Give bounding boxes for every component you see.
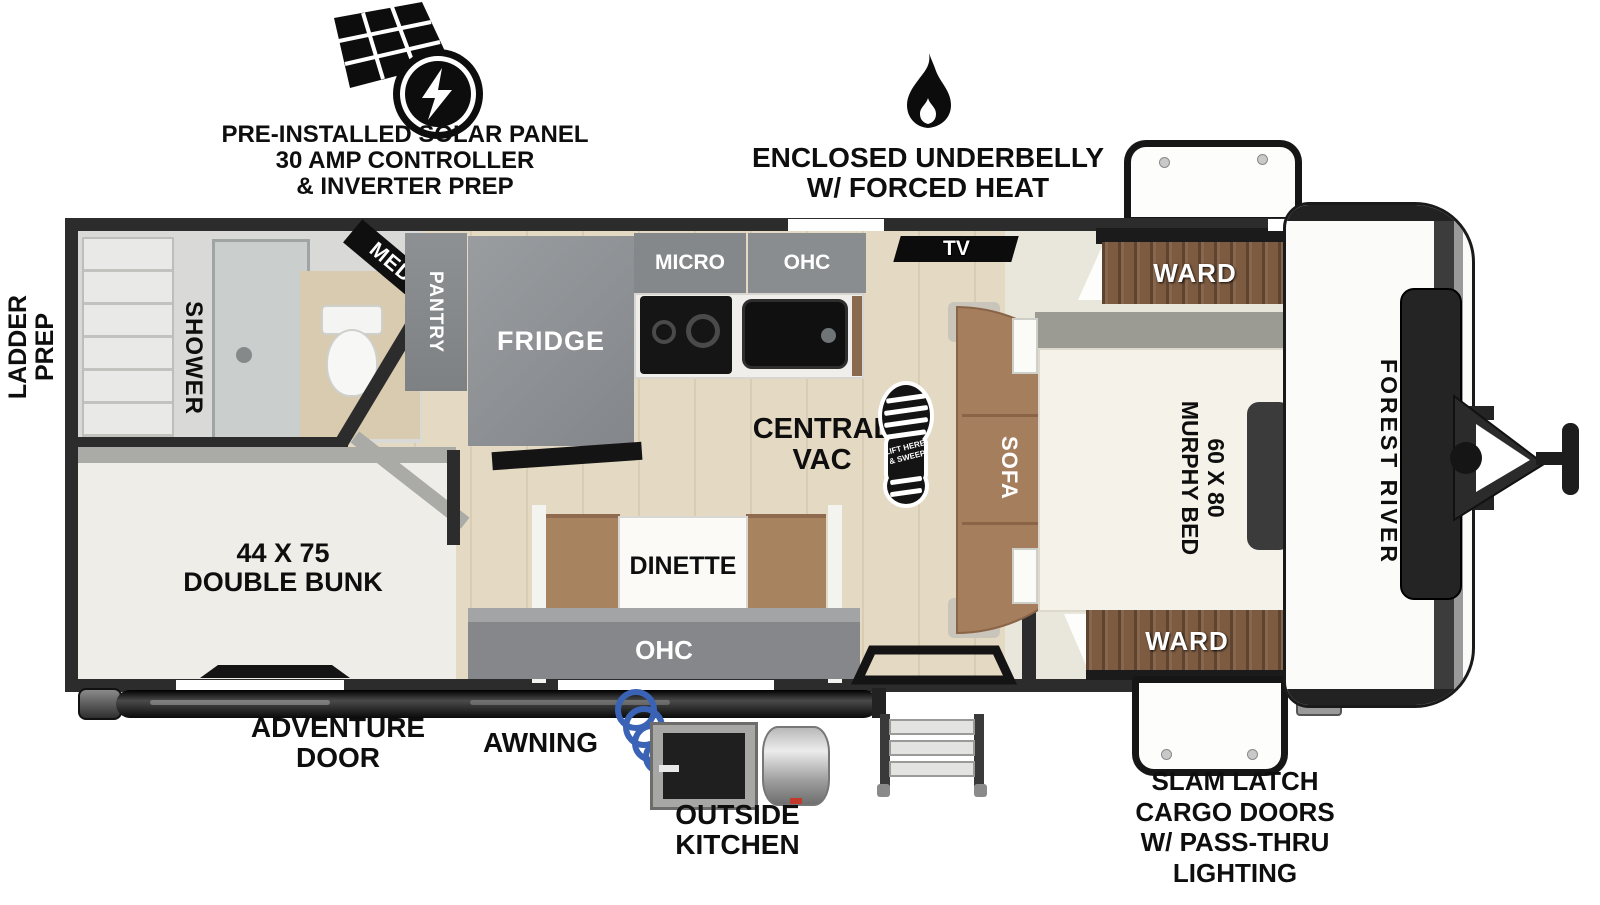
ward-bottom-label: WARD (1145, 626, 1228, 657)
boot-print-icon: LIFT HERE & SWEEP (876, 380, 936, 512)
awning-glint (150, 700, 330, 705)
cap-top-trim (1286, 205, 1472, 221)
cargo-doors-line: SLAM LATCH (1120, 766, 1350, 797)
faucet-icon (821, 328, 836, 343)
burner-icon (686, 314, 720, 348)
underbelly-line: ENCLOSED UNDERBELLY (738, 143, 1118, 173)
ward-top-label: WARD (1153, 258, 1236, 289)
entry-door-mat (850, 644, 1020, 688)
ladder-prep-line: PREP (32, 262, 59, 432)
solar-line: & INVERTER PREP (215, 174, 595, 200)
dinette-ohc: OHC (468, 608, 860, 679)
entry-steps (874, 714, 990, 798)
dinette-bench (546, 514, 620, 616)
hitch-icon (1448, 378, 1583, 538)
bunk-step-mat (200, 665, 350, 678)
linen-closet (82, 237, 174, 439)
dinette-label: DINETTE (630, 553, 737, 580)
bunk-room: 44 X 75 DOUBLE BUNK (78, 447, 456, 679)
adventure-door-line: DOOR (218, 743, 458, 773)
forced-heat-flame-icon (896, 52, 960, 138)
outside-griddle (762, 726, 830, 806)
screw-icon (1161, 749, 1172, 760)
pantry-label: PANTRY (426, 237, 446, 387)
window-gap (788, 219, 884, 231)
burner-icon (652, 320, 676, 344)
wardrobe-top: WARD (1102, 242, 1288, 304)
screw-icon (1257, 154, 1268, 165)
outside-kitchen-line: KITCHEN (645, 830, 830, 860)
outside-kitchen-line: OUTSIDE (645, 800, 830, 830)
cooktop (640, 296, 732, 374)
solar-callout: PRE-INSTALLED SOLAR PANEL 30 AMP CONTROL… (215, 122, 595, 200)
screw-icon (1159, 157, 1170, 168)
cargo-doors-line: CARGO DOORS (1120, 797, 1350, 828)
underbelly-line: W/ FORCED HEAT (738, 173, 1118, 203)
outside-sink (650, 722, 758, 810)
shower-stall (212, 239, 310, 441)
awning-callout: AWNING (468, 728, 613, 758)
shower-head-icon (236, 347, 252, 363)
shower-label: SHOWER (180, 283, 206, 433)
fridge-label: FRIDGE (497, 326, 605, 357)
tv-label: TV (943, 237, 970, 261)
adventure-door-line: ADVENTURE (218, 713, 458, 743)
tv: TV (893, 236, 1018, 262)
murphy-bed-label: 60 X 80 MURPHY BED (1175, 373, 1229, 583)
ladder-prep-line: LADDER (5, 262, 32, 432)
cargo-doors-line: W/ PASS-THRU (1120, 827, 1350, 858)
bunk-line: DOUBLE BUNK (133, 568, 433, 597)
dinette-bench (746, 514, 826, 616)
fridge: FRIDGE (468, 236, 634, 446)
cargo-doors-line: LIGHTING (1120, 858, 1350, 889)
kitchen-ohc-label: OHC (784, 251, 831, 275)
nightstand (1012, 548, 1038, 604)
solar-line: 30 AMP CONTROLLER (215, 148, 595, 174)
dinette-table: DINETTE (618, 516, 748, 616)
counter-wood-edge (852, 296, 862, 376)
micro-label: MICRO (655, 251, 725, 275)
bunk-wall-shadow (78, 447, 456, 463)
wardrobe-bottom: WARD (1086, 610, 1288, 672)
solar-line: PRE-INSTALLED SOLAR PANEL (215, 122, 595, 148)
cap-bottom-trim (1286, 689, 1472, 705)
rv-floorplan-diagram: PRE-INSTALLED SOLAR PANEL 30 AMP CONTROL… (0, 0, 1600, 905)
dinette-ohc-label: OHC (635, 635, 693, 666)
nightstand (1012, 318, 1038, 374)
bunk-label: 44 X 75 DOUBLE BUNK (133, 539, 433, 597)
cargo-doors-callout: SLAM LATCH CARGO DOORS W/ PASS-THRU LIGH… (1120, 766, 1350, 889)
microwave: MICRO (634, 233, 746, 293)
ladder-prep-callout: LADDER PREP (5, 262, 61, 432)
cargo-door-bottom (1132, 676, 1288, 776)
kitchen-sink (742, 299, 848, 369)
bunk-line: 44 X 75 (133, 539, 433, 568)
murphy-bed-line: MURPHY BED (1176, 373, 1202, 583)
screw-icon (1247, 749, 1258, 760)
cargo-door-top (1124, 140, 1302, 224)
outside-faucet-icon (659, 765, 679, 772)
adventure-door-callout: ADVENTURE DOOR (218, 713, 458, 773)
sofa-label: SOFA (998, 423, 1022, 513)
murphy-bed-frame (1035, 312, 1287, 348)
outside-kitchen-callout: OUTSIDE KITCHEN (645, 800, 830, 860)
kitchen-ohc: OHC (748, 233, 866, 293)
murphy-bed-line: 60 X 80 (1203, 373, 1229, 583)
bunk-right-wall (447, 450, 460, 545)
brand-label: FOREST RIVER (1375, 297, 1401, 627)
underbelly-callout: ENCLOSED UNDERBELLY W/ FORCED HEAT (738, 143, 1118, 203)
